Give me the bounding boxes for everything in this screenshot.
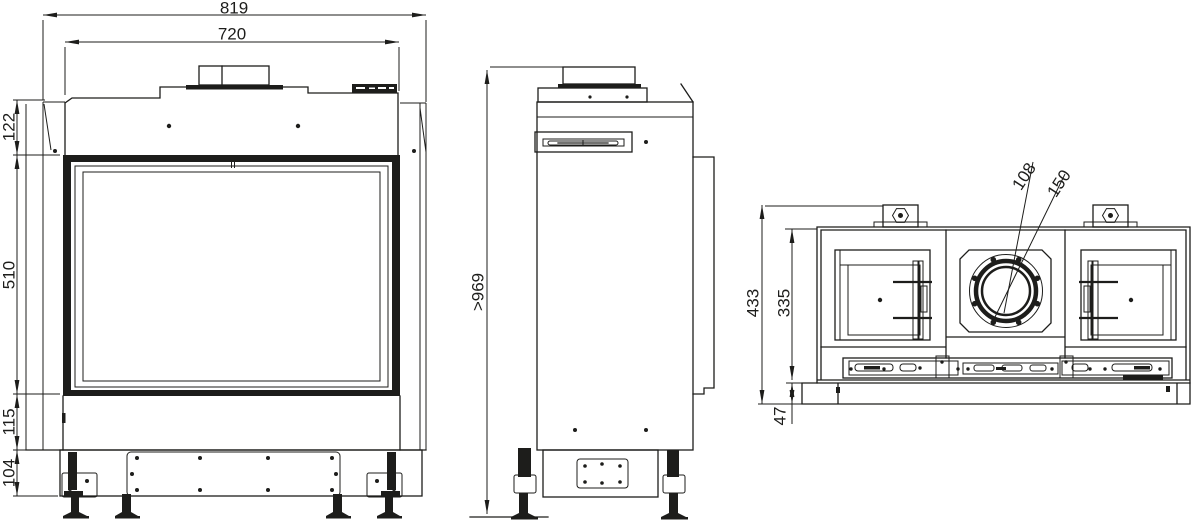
rail-bar <box>1134 366 1150 370</box>
screw-dot <box>1064 360 1067 363</box>
rear-dim-body-depth: 335 <box>774 229 817 380</box>
flue-outer-circle <box>970 255 1043 328</box>
screw-dot <box>135 488 139 492</box>
screw-dot <box>375 479 379 483</box>
screw-dot <box>956 367 959 370</box>
screw-dot <box>135 456 139 460</box>
foot-plate <box>377 516 402 519</box>
front-leg-right <box>367 452 402 519</box>
strip-tab <box>1166 386 1170 392</box>
screw-dot <box>1050 367 1053 370</box>
bolt-dot <box>1035 276 1041 282</box>
front-flue-stub <box>186 66 283 90</box>
screw-dot <box>198 488 202 492</box>
bay-divider-lines <box>821 230 1186 358</box>
screw-dot <box>85 479 89 483</box>
screw-dot <box>392 487 396 491</box>
screw-dot <box>600 481 604 485</box>
front-strip <box>802 383 1190 404</box>
leg-adjuster <box>514 475 536 493</box>
screw-dot <box>644 140 648 144</box>
screw-dot <box>68 487 72 491</box>
screw-dot <box>296 124 300 128</box>
side-handle-slot <box>535 132 648 152</box>
glass-inner-line <box>75 166 388 387</box>
dim-label-104: 104 <box>0 459 18 487</box>
rear-fold-line <box>681 84 693 102</box>
dim-label-122: 122 <box>0 113 18 141</box>
screw-dot <box>1158 367 1161 370</box>
base-outline <box>543 450 658 497</box>
screw-dot <box>618 480 622 484</box>
screw-dot <box>583 480 587 484</box>
screw-dot <box>849 367 852 370</box>
rear-flue-flange <box>960 250 1051 332</box>
technical-drawing-page: 819 720 122 510 115 104 <box>0 0 1200 521</box>
front-flange-right <box>400 103 426 450</box>
rail-slot <box>900 364 916 371</box>
screw-dot <box>1088 367 1091 370</box>
flue-inner-ring <box>982 267 1030 315</box>
leg-bar <box>518 448 531 477</box>
flange-fold <box>420 108 426 152</box>
front-lower-band <box>26 396 426 450</box>
foot-flare <box>115 512 138 516</box>
screw-dot <box>167 124 171 128</box>
rail-section <box>1062 361 1169 375</box>
bolt-center-dot <box>1108 213 1113 218</box>
screw-dot <box>600 462 604 466</box>
flue-stub <box>199 66 269 85</box>
side-body <box>537 67 714 450</box>
hinge-bar <box>913 261 918 339</box>
foot-plate <box>63 516 89 519</box>
front-leg-left <box>62 452 97 519</box>
foot-flare <box>63 512 87 516</box>
fireplace-dimension-drawing: 819 720 122 510 115 104 <box>0 0 1200 521</box>
flange-fold <box>44 104 51 150</box>
rail-bar <box>864 366 880 370</box>
screw-dot <box>198 456 202 460</box>
latch-tick <box>62 413 66 423</box>
foot-plate <box>115 516 140 519</box>
leg-clamp <box>381 491 400 497</box>
rear-dim-overall-depth: 433 <box>743 205 883 404</box>
dim-label-108: 108 <box>1008 159 1039 193</box>
screw-dot <box>878 298 882 302</box>
frame-center-tick <box>232 162 235 168</box>
side-leg-front <box>511 448 538 520</box>
screw-dot <box>53 149 57 153</box>
screw-dot <box>625 95 628 98</box>
rail-slot <box>1030 365 1046 371</box>
door-panel <box>848 265 920 335</box>
screw-dot <box>583 464 587 468</box>
foot-stem <box>385 497 393 512</box>
foot-stem <box>71 497 79 512</box>
bolt-center-dot <box>898 213 903 218</box>
brand-label-mark <box>378 87 386 89</box>
screw-dot <box>266 456 270 460</box>
leg-bar <box>387 452 396 490</box>
front-flange-left <box>26 102 65 450</box>
foot-stem <box>122 494 131 512</box>
rear-spacer-panel <box>693 157 714 394</box>
flue-collar <box>558 84 641 89</box>
bolt-dot <box>991 257 997 263</box>
rear-mounting-rail <box>843 356 1172 378</box>
hood-outline <box>65 87 398 155</box>
screw-dot <box>918 366 921 369</box>
screw-dot <box>588 95 591 98</box>
dim-extension-lines <box>13 100 60 496</box>
bolt-dot <box>972 301 978 307</box>
rail-slot <box>1072 364 1088 371</box>
strip-tab <box>836 387 840 393</box>
dim-label-969: >969 <box>468 273 487 311</box>
screw-dot <box>618 464 622 468</box>
front-view: 819 720 122 510 115 104 <box>0 0 426 519</box>
top-cap <box>538 88 647 102</box>
leg-bar <box>667 450 679 477</box>
screw-dot <box>130 472 134 476</box>
dim-label-115: 115 <box>0 408 18 435</box>
glass-frame <box>63 155 400 396</box>
leg-adjuster <box>663 475 685 493</box>
side-dim-height: >969 <box>468 67 563 514</box>
dim-label-47: 47 <box>770 407 789 426</box>
screw-dot <box>1129 298 1133 302</box>
brand-label-mark <box>369 88 375 90</box>
side-leg-rear <box>661 450 688 520</box>
bolt-dot <box>1035 301 1041 307</box>
dim-label-335: 335 <box>774 289 793 317</box>
foot-flare <box>661 513 686 517</box>
rear-opening-right <box>1079 250 1176 340</box>
foot-stem <box>519 493 528 513</box>
dim-label-150: 150 <box>1043 166 1074 200</box>
screw-dot <box>644 428 648 432</box>
screw-dot <box>573 428 577 432</box>
dim-label-819: 819 <box>220 0 248 17</box>
dim-label-720: 720 <box>218 24 246 43</box>
bolt-dot <box>972 276 978 282</box>
leg-clamp <box>64 491 83 497</box>
flue-collar-ring <box>976 261 1036 321</box>
flange-lines <box>400 103 426 450</box>
latch-plate <box>921 286 927 312</box>
rear-opening-left <box>835 250 932 340</box>
front-leg-inner-left <box>115 494 140 519</box>
rear-view: 433 335 47 108 150 <box>743 159 1190 425</box>
opening-outer <box>835 250 930 340</box>
screw-dot <box>412 149 416 153</box>
foot-stem <box>333 494 342 512</box>
rear-bracket-left <box>874 205 927 227</box>
hinge-bar <box>1093 261 1098 339</box>
screw-dot <box>882 367 885 370</box>
base-panel <box>127 452 340 496</box>
dim-label-433: 433 <box>743 289 762 317</box>
foot-flare <box>326 512 349 516</box>
opening-outer <box>1081 250 1176 340</box>
leg-bar <box>68 452 77 490</box>
front-glass-door <box>63 155 400 396</box>
side-base <box>543 450 658 497</box>
bolt-dot <box>991 320 997 326</box>
rear-bracket-right <box>1084 205 1137 227</box>
bolt-dot <box>1016 257 1022 263</box>
flue-stub <box>563 67 635 84</box>
front-hood <box>65 84 398 155</box>
front-dim-height-chain: 122 510 115 104 <box>0 100 60 496</box>
brand-label-mark <box>389 87 394 89</box>
screw-dot <box>334 472 338 476</box>
foot-plate <box>661 517 688 520</box>
glass-pane-line <box>83 172 380 381</box>
brand-label-mark <box>356 87 365 89</box>
rail-bar <box>996 367 1006 370</box>
screw-dot <box>966 367 969 370</box>
body-side-lines <box>63 396 400 450</box>
screw-dot <box>330 456 334 460</box>
door-panel <box>1091 265 1163 335</box>
bolt-dot <box>1016 320 1022 326</box>
rail-slot <box>974 365 994 371</box>
flange-lines <box>26 102 65 450</box>
side-view: >969 <box>468 67 714 520</box>
latch-plate <box>1084 286 1090 312</box>
dim-label-510: 510 <box>0 261 18 289</box>
foot-plate <box>326 516 351 519</box>
front-leg-inner-right <box>326 494 351 519</box>
body-outline <box>537 102 693 450</box>
screw-dot <box>266 488 270 492</box>
screw-dot <box>940 360 943 363</box>
foot-flare <box>377 512 400 516</box>
screw-dot <box>1103 367 1106 370</box>
foot-stem <box>669 493 678 513</box>
screw-dot <box>330 488 334 492</box>
